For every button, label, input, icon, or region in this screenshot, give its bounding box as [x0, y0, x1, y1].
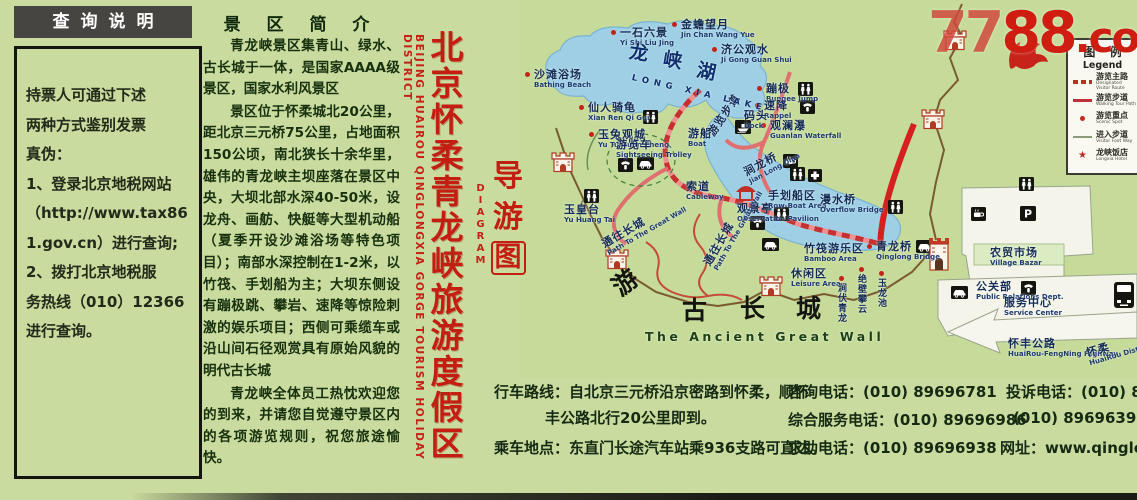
- map-spot-label: 涧伏青龙: [836, 276, 846, 323]
- legend-label-en: Visitor Foot Way: [1096, 139, 1132, 144]
- scenic-spot-dot-icon: [867, 244, 872, 249]
- map-spot-label: 游: [612, 271, 638, 295]
- scenic-spot-dot-icon: [757, 86, 762, 91]
- map-spot-label: 济公观水Ji Gong Guan Shui: [721, 44, 792, 64]
- scan-edge-bar: [130, 493, 1137, 500]
- map-spot-label: 速降Rappel: [764, 100, 791, 120]
- spot-name-cn: 漫水桥: [820, 194, 884, 205]
- spot-name-en: Sightseeing Trolley: [616, 151, 692, 159]
- intro-paragraph: 青龙峡全体员工热忱欢迎您的到来，并请您自觉遵守景区内的各项游览规则，祝您旅途愉快…: [203, 384, 400, 470]
- map-spot-label: 金蟾望月Jin Chan Wang Yue: [681, 19, 755, 39]
- scenic-spot-dot-icon: [579, 105, 584, 110]
- spot-name-cn: 游览车: [616, 139, 692, 150]
- spot-name-cn: 绝壁攀云: [856, 274, 866, 314]
- guide-char-boxed: 图: [491, 241, 526, 275]
- scenic-spot-dot-icon: [879, 271, 884, 276]
- scenic-spot-dot-icon: [672, 22, 677, 27]
- spot-name-cn: 古: [682, 305, 707, 316]
- wc-icon: [1019, 177, 1034, 191]
- bus-stop-label: 乘车地点：: [494, 439, 569, 457]
- map-spot-label: 游览车Sightseeing Trolley: [616, 139, 692, 159]
- legend-label-cn: 游览步道: [1096, 94, 1136, 102]
- spot-name-cn: 休闲区: [791, 268, 841, 279]
- spot-name-cn: 公关部: [976, 281, 1064, 292]
- spot-name-en: Ji Gong Guan Shui: [721, 56, 792, 64]
- banner-title-vertical: 北京怀柔青龙峡旅游度假区: [420, 30, 468, 480]
- spot-name-cn: 沙滩浴场: [534, 69, 591, 80]
- legend-item: 游览主路Designated Visitor Route: [1073, 74, 1137, 89]
- guide-char-1: 导: [490, 156, 526, 197]
- legend-label-en: Longxia Hotel: [1096, 157, 1128, 162]
- query-panel-line: 2、拨打北京地税服: [26, 258, 199, 288]
- spot-name-en: Qinglong Bridge: [876, 253, 940, 261]
- tower-icon: [550, 150, 576, 173]
- spot-name-cn: 手划船区: [768, 190, 827, 201]
- spot-name-en: Village Bazar: [990, 259, 1042, 267]
- drive-route-line2: 丰公路北行20公里即到。: [545, 407, 716, 428]
- spot-name-en: Service Center: [1004, 309, 1062, 317]
- map-spot-label: 长: [740, 303, 765, 314]
- wc-icon: [790, 167, 805, 181]
- spot-name-cn: 龙: [628, 47, 648, 61]
- intro-title: 景 区 简 介: [203, 10, 400, 35]
- spot-name-cn: 竹筏游乐区: [804, 243, 864, 254]
- spot-name-cn: 金蟾望月: [681, 19, 755, 30]
- spot-name-cn: 服务中心: [1004, 297, 1062, 308]
- query-panel-line: 进行查询。: [26, 317, 199, 347]
- spot-name-cn: 蹦极: [766, 83, 818, 94]
- legend-swatch-dot-icon: [1080, 116, 1085, 121]
- spot-name-cn: 长: [740, 303, 765, 314]
- scenic-spot-dot-icon: [525, 72, 530, 77]
- spot-name-en: Cableway: [686, 193, 724, 201]
- phone-info: 咨询电话：(010) 89696781: [788, 381, 997, 402]
- bus-stop-text: 东直门长途汽车站乘936支路可直达。: [569, 439, 825, 457]
- map-spot-label: 古: [682, 305, 707, 316]
- legend-label-cn: 龙峡饭店: [1096, 149, 1128, 157]
- watermark-suffix: .com: [1075, 13, 1137, 62]
- map-spot-label: 休闲区Leisure Area: [791, 268, 841, 288]
- spot-name-en: Leisure Area: [791, 280, 841, 288]
- car-icon: [951, 286, 968, 299]
- spot-name-en: Jin Chan Wang Yue: [681, 31, 755, 39]
- spot-name-cn: 游: [612, 271, 638, 295]
- map-spot-label: 漫水桥Overflow Bridge: [820, 194, 884, 214]
- legend-label-en: Designated Visitor Route: [1096, 81, 1137, 91]
- query-panel-line: 真伪：: [26, 140, 199, 170]
- parking-icon: P: [1020, 206, 1036, 221]
- map-spot-label: 玉皇台Yu Huang Tai: [564, 204, 615, 224]
- scanned-ticket-page: 查询说明 持票人可通过下述两种方式鉴别发票真伪：1、登录北京地税网站（http:…: [0, 0, 1137, 500]
- spot-name-en: Bamboo Area: [804, 255, 864, 263]
- spot-name-cn: 涧伏青龙: [836, 283, 846, 323]
- map-spot-label: 玉龙池: [876, 271, 886, 308]
- intro-body: 青龙峡景区集青山、绿水、古长城于一体，是国家AAAA级景区，国家水利风景区景区位…: [203, 36, 400, 470]
- svg-text:P: P: [1024, 208, 1032, 221]
- coffee-icon: [971, 207, 986, 221]
- map-spot-label: 手划船区Row-Boat Area: [768, 190, 827, 210]
- phone-info: 求助电话：(010) 89696938: [788, 437, 997, 458]
- legend-label-cn: 进入步道: [1096, 131, 1132, 139]
- spot-name-cn: 一石六景: [620, 27, 674, 38]
- spot-name-en: Bathing Beach: [534, 81, 591, 89]
- guide-map-title: 导 游 图: [490, 156, 526, 275]
- drive-route-row: 行车路线：自北京三元桥沿京密路到怀柔，顺怀: [494, 381, 809, 402]
- spot-name-cn: 索道: [686, 181, 724, 192]
- query-panel-box: 持票人可通过下述两种方式鉴别发票真伪：1、登录北京地税网站（http://www…: [14, 46, 202, 479]
- map-spot-label: 沙滩浴场Bathing Beach: [534, 69, 591, 89]
- query-panel-title: 查询说明: [14, 6, 192, 38]
- legend-item: 进入步道Visitor Foot Way: [1073, 130, 1137, 145]
- scenic-spot-dot-icon: [589, 132, 594, 137]
- spot-name-en: Dock: [744, 122, 768, 130]
- firstaid-icon: [808, 169, 822, 182]
- legend-label-cn: 游览主路: [1096, 73, 1137, 81]
- intro-paragraph: 景区位于怀柔城北20公里，距北京三元桥75公里，占地面积150公顷，南北狭长十余…: [203, 102, 400, 383]
- watermark-light-part: 77: [928, 0, 1001, 66]
- intro-paragraph: 青龙峡景区集青山、绿水、古长城于一体，是国家AAAA级景区，国家水利风景区: [203, 36, 400, 101]
- map-spot-label: 仙人骑龟Xian Ren Qi Gui: [588, 102, 649, 122]
- guide-diagram-label: DIAGRAM: [475, 183, 486, 267]
- spot-name-cn: 仙人骑龟: [588, 102, 649, 113]
- intro-section: 景 区 简 介 青龙峡景区集青山、绿水、古长城于一体，是国家AAAA级景区，国家…: [203, 10, 400, 470]
- legend-label-en: Walking Tour Path: [1096, 102, 1136, 107]
- spot-name-cn: 城: [796, 303, 821, 314]
- map-spot-label: 观澜瀑Guanlan Waterfall: [770, 120, 841, 140]
- legend-label-cn: 游览重点: [1096, 112, 1128, 120]
- query-panel-line: （http://www.tax86: [26, 199, 199, 229]
- map-spot-label: 竹筏游乐区Bamboo Area: [804, 243, 864, 263]
- spot-name-cn: 玉龙池: [876, 278, 886, 308]
- legend-swatch-dash-icon: [1073, 80, 1092, 84]
- legend-items: 游览主路Designated Visitor Route游览步道Walking …: [1068, 74, 1137, 163]
- wc-icon: [888, 200, 903, 214]
- scenic-spot-dot-icon: [839, 276, 844, 281]
- guide-char-2: 游: [490, 197, 526, 238]
- legend-swatch-thin-icon: [1073, 136, 1092, 138]
- spot-name-cn: 湖: [696, 65, 717, 80]
- spot-name-en: Overflow Bridge: [820, 206, 884, 214]
- legend-item: ★龙峡饭店Longxia Hotel: [1073, 148, 1137, 163]
- spot-name-cn: 速降: [764, 100, 791, 111]
- map-spot-label: 湖: [696, 65, 717, 80]
- spot-name-en: Yu Huang Tai: [564, 216, 615, 224]
- drive-route-label: 行车路线：: [494, 383, 569, 401]
- wc-icon: [584, 189, 599, 203]
- spot-name-cn: 峡: [662, 54, 683, 68]
- phone-info: 投诉电话：(010) 8969669: [1006, 381, 1137, 402]
- spot-name-en: The Ancient Great Wall: [645, 333, 884, 341]
- watermark-7788: 7788.com: [928, 0, 1137, 66]
- map-spot-label: The Ancient Great Wall: [645, 332, 884, 341]
- query-panel-line: 1.gov.cn）进行查询;: [26, 229, 199, 259]
- map-spot-label: 峡: [662, 54, 683, 68]
- drive-route-text: 自北京三元桥沿京密路到怀柔，顺怀: [569, 383, 809, 401]
- phone-info: 网址：www.qinglongxia.cn: [1000, 437, 1137, 458]
- query-panel-line: 1、登录北京地税网站: [26, 170, 199, 200]
- spot-name-en: Xian Ren Qi Gui: [588, 114, 649, 122]
- map-spot-label: 农贸市场Village Bazar: [990, 247, 1042, 267]
- phone-info: 综合服务电话：(010) 89696986: [788, 409, 1027, 430]
- map-spot-label: 青龙桥Qinglong Bridge: [876, 241, 940, 261]
- query-panel-line: 两种方式鉴别发票: [26, 111, 199, 141]
- query-panel-line: 持票人可通过下述: [26, 81, 199, 111]
- map-spot-label: 服务中心Service Center: [1004, 297, 1062, 317]
- watermark-dark-part: 88: [1001, 0, 1074, 66]
- phone-icon: [618, 158, 633, 172]
- map-spot-label: 索道Cableway: [686, 181, 724, 201]
- phone-info: (010) 89696391: [1013, 409, 1137, 427]
- spot-name-en: Guanlan Waterfall: [770, 132, 841, 140]
- spot-name-cn: 青龙桥: [876, 241, 940, 252]
- car-icon: [762, 238, 779, 251]
- spot-name-cn: 济公观水: [721, 44, 792, 55]
- tower-icon: [920, 107, 946, 130]
- legend-item: 游览步道Walking Tour Path: [1073, 93, 1137, 108]
- spot-name-cn: 观澜瀑: [770, 120, 841, 131]
- legend-label-en: Scenic Spot: [1096, 120, 1128, 125]
- map-spot-label: 龙: [628, 47, 648, 61]
- scenic-spot-dot-icon: [712, 47, 717, 52]
- spot-name-en: Row-Boat Area: [768, 202, 827, 210]
- legend-swatch-star-icon: ★: [1078, 151, 1087, 161]
- query-panel-line: 务热线（010）12366: [26, 288, 199, 318]
- spot-name-cn: 玉皇台: [564, 204, 615, 215]
- map-spot-label: 城: [796, 303, 821, 314]
- bus-stop-row: 乘车地点：东直门长途汽车站乘936支路可直达。: [494, 437, 825, 458]
- scenic-spot-dot-icon: [611, 30, 616, 35]
- legend-item: 游览重点Scenic Spot: [1073, 111, 1137, 126]
- legend-swatch-line-icon: [1073, 99, 1092, 102]
- bus-icon: [1113, 281, 1135, 309]
- spot-name-cn: 农贸市场: [990, 247, 1042, 258]
- scenic-spot-dot-icon: [859, 267, 864, 272]
- map-spot-label: 绝壁攀云: [856, 267, 866, 314]
